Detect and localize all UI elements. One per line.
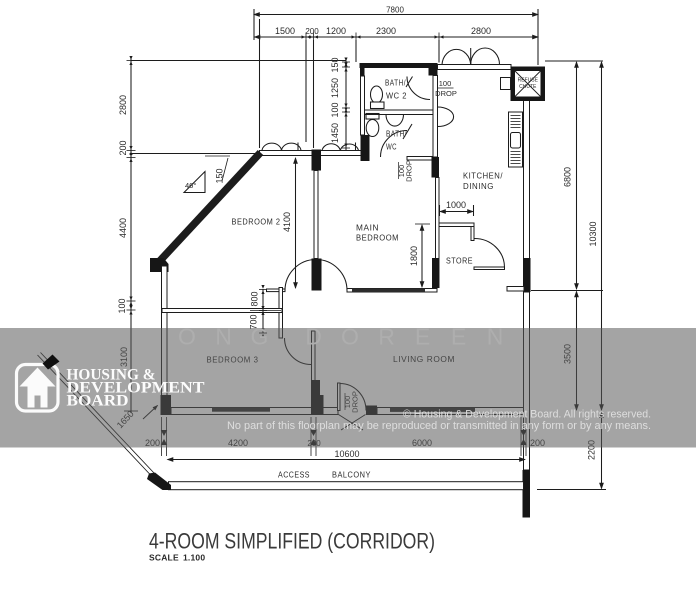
svg-text:1.100: 1.100 [183, 553, 205, 563]
svg-text:100: 100 [117, 298, 127, 313]
svg-text:ACCESS: ACCESS [278, 470, 310, 480]
svg-text:7800: 7800 [386, 6, 404, 15]
svg-text:E: E [415, 324, 430, 350]
svg-text:BEDROOM 2: BEDROOM 2 [232, 217, 281, 227]
svg-text:2300: 2300 [376, 26, 396, 36]
svg-text:O: O [178, 324, 196, 350]
svg-text:1450: 1450 [330, 123, 340, 143]
svg-text:WC: WC [386, 142, 397, 152]
svg-text:BATH/: BATH/ [386, 129, 407, 139]
svg-text:© Housing & Development Board.: © Housing & Development Board. All right… [403, 409, 651, 421]
svg-text:E: E [451, 324, 466, 350]
svg-text:O: O [341, 324, 359, 350]
svg-text:BEDROOM: BEDROOM [356, 233, 399, 243]
svg-text:200: 200 [118, 140, 128, 155]
svg-text:BATH/: BATH/ [385, 78, 406, 88]
svg-text:CHUTE: CHUTE [519, 84, 537, 90]
svg-text:6800: 6800 [563, 167, 573, 187]
svg-text:4100: 4100 [282, 212, 292, 232]
svg-text:1250: 1250 [330, 78, 340, 98]
svg-text:4400: 4400 [118, 218, 128, 238]
svg-text:100: 100 [439, 79, 452, 88]
svg-text:DROP: DROP [405, 160, 414, 182]
svg-text:2800: 2800 [118, 95, 128, 115]
svg-text:KITCHEN/: KITCHEN/ [463, 171, 503, 181]
svg-text:150: 150 [330, 57, 340, 72]
svg-text:REFUSE: REFUSE [518, 78, 539, 84]
svg-text:STORE: STORE [446, 256, 473, 266]
svg-text:BOARD: BOARD [67, 393, 129, 410]
svg-text:BALCONY: BALCONY [332, 470, 371, 480]
svg-text:46°: 46° [185, 181, 196, 190]
svg-text:SCALE: SCALE [149, 553, 179, 563]
svg-text:2800: 2800 [471, 26, 491, 36]
svg-text:4-ROOM SIMPLIFIED (CORRIDOR): 4-ROOM SIMPLIFIED (CORRIDOR) [149, 529, 435, 554]
svg-text:1500: 1500 [275, 26, 295, 36]
svg-text:WC 2: WC 2 [386, 91, 407, 101]
svg-text:N: N [487, 324, 504, 350]
svg-text:N: N [215, 324, 232, 350]
svg-text:1200: 1200 [326, 26, 346, 36]
svg-text:No part of this floorplan may: No part of this floorplan may be reprodu… [227, 420, 651, 432]
svg-text:10300: 10300 [588, 221, 598, 246]
svg-text:200: 200 [305, 27, 319, 36]
svg-text:MAIN: MAIN [356, 223, 379, 233]
svg-text:1000: 1000 [446, 200, 466, 210]
svg-text:G: G [251, 324, 269, 350]
svg-text:R: R [378, 324, 395, 350]
svg-text:800: 800 [250, 291, 260, 306]
svg-text:10600: 10600 [334, 449, 359, 459]
svg-text:DINING: DINING [463, 181, 494, 191]
svg-text:DROP: DROP [435, 89, 457, 98]
svg-text:100: 100 [330, 102, 340, 117]
svg-text:D: D [305, 324, 322, 350]
svg-text:1800: 1800 [409, 246, 419, 266]
